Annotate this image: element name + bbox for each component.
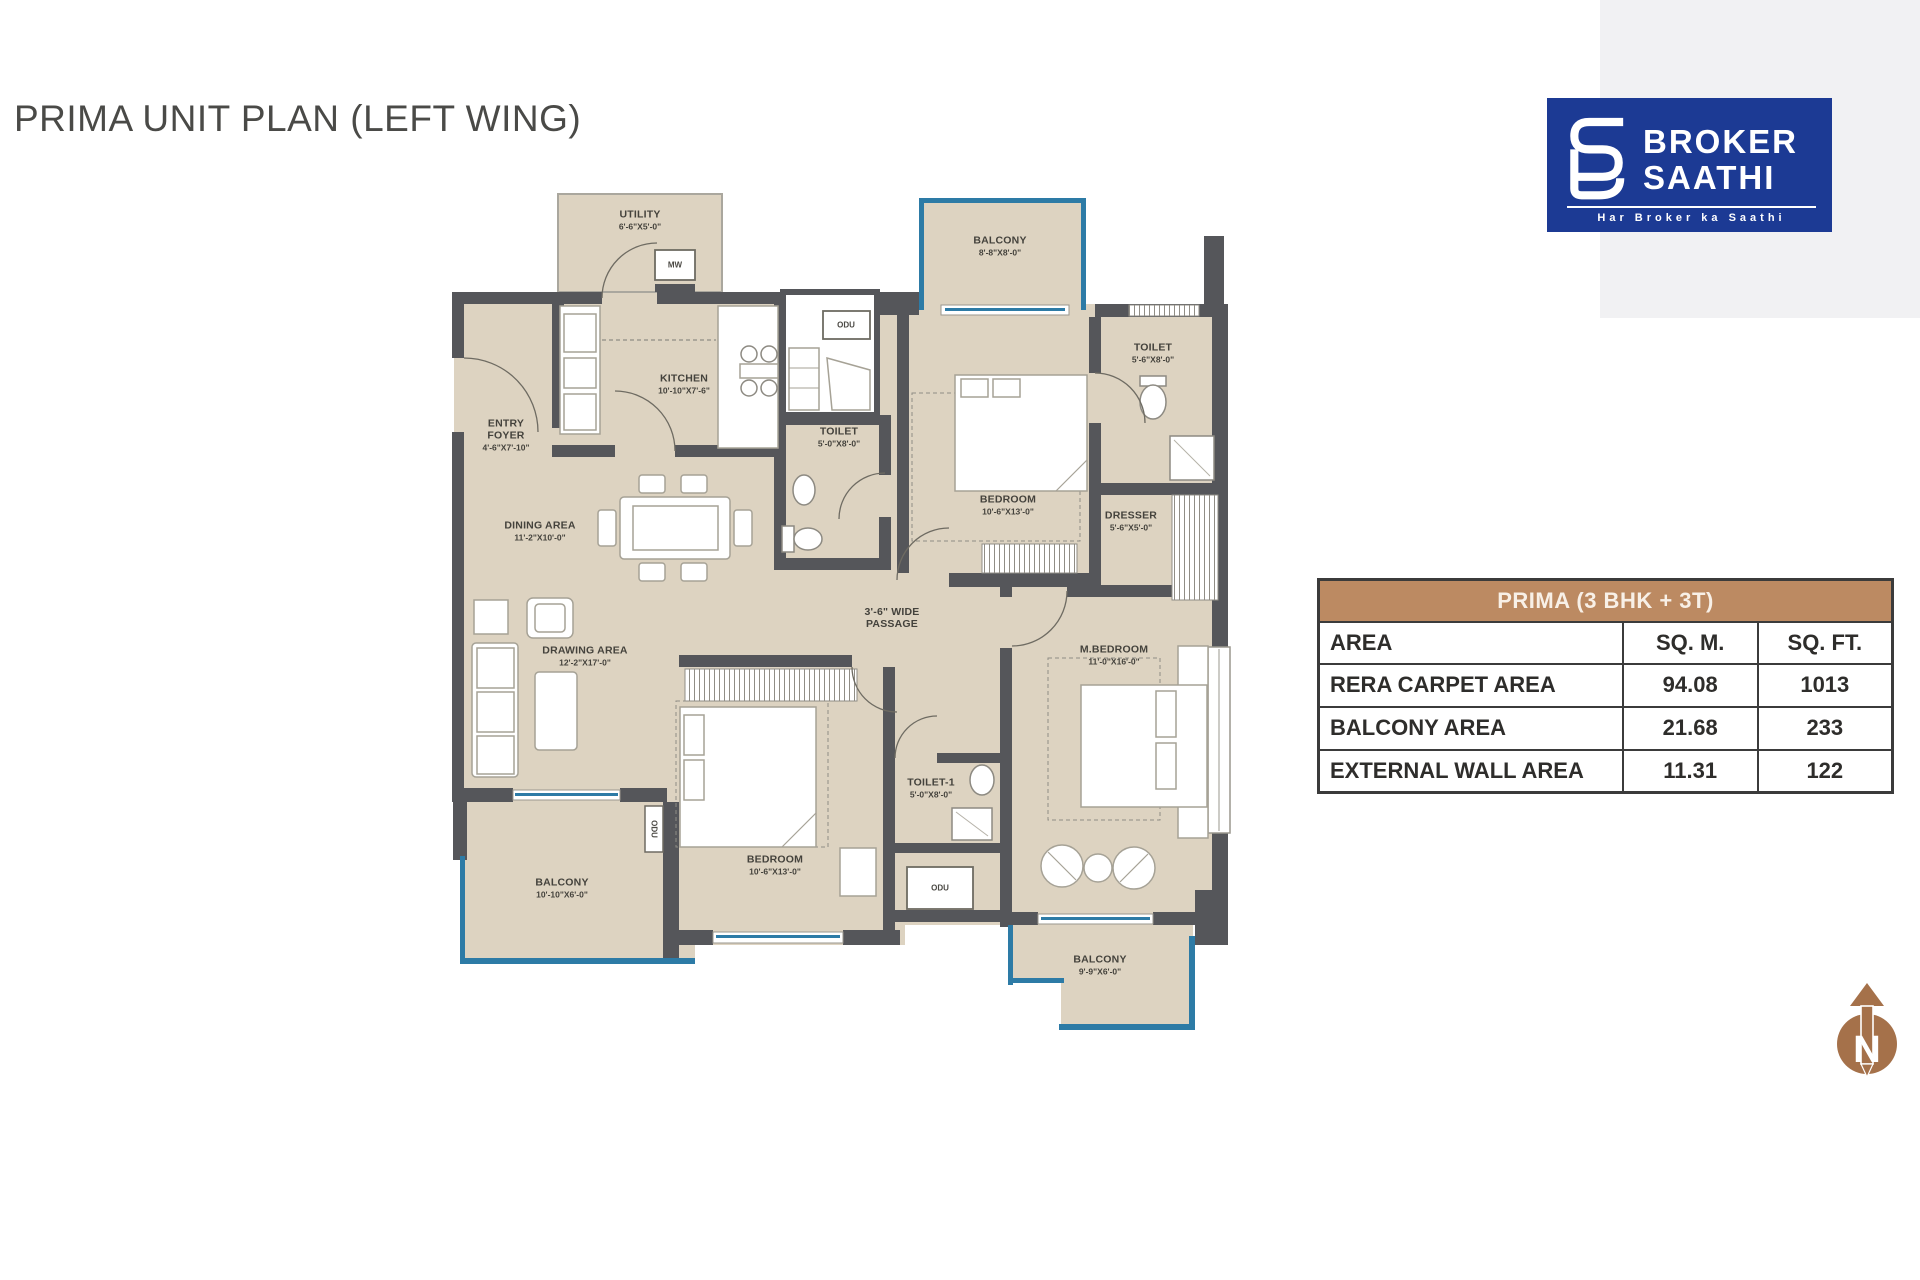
fixture-label: ODU — [837, 321, 855, 330]
floor-plan: UTILITY6'-6"X5'-0"KITCHEN10'-10"X7'-6"EN… — [452, 188, 1232, 1048]
col-header-sqm: SQ. M. — [1623, 622, 1758, 664]
page-title: PRIMA UNIT PLAN (LEFT WING) — [14, 98, 581, 140]
table-row: RERA CARPET AREA 94.08 1013 — [1319, 664, 1893, 707]
area-table: PRIMA (3 BHK + 3T) AREA SQ. M. SQ. FT. R… — [1317, 578, 1894, 794]
col-header-sqft: SQ. FT. — [1758, 622, 1893, 664]
logo-tagline: Har Broker ka Saathi — [1567, 206, 1816, 224]
north-compass: N — [1834, 982, 1900, 1082]
col-header-area: AREA — [1319, 622, 1623, 664]
row-sqft: 122 — [1758, 750, 1893, 793]
row-label: BALCONY AREA — [1319, 707, 1623, 750]
row-sqm: 21.68 — [1623, 707, 1758, 750]
logo-line2: SAATHI — [1643, 161, 1798, 194]
compass-n-label: N — [1853, 1029, 1880, 1071]
logo-text: BROKER SAATHI — [1643, 125, 1798, 194]
table-row: EXTERNAL WALL AREA 11.31 122 — [1319, 750, 1893, 793]
logo-line1: BROKER — [1643, 125, 1798, 158]
row-sqm: 94.08 — [1623, 664, 1758, 707]
row-sqft: 1013 — [1758, 664, 1893, 707]
fixture-label: ODU — [650, 820, 659, 838]
north-arrow-icon: N — [1834, 982, 1900, 1082]
area-table-title: PRIMA (3 BHK + 3T) — [1319, 580, 1893, 622]
fixture-label: MW — [668, 261, 682, 270]
row-label: RERA CARPET AREA — [1319, 664, 1623, 707]
table-row: BALCONY AREA 21.68 233 — [1319, 707, 1893, 750]
fixture-label: ODU — [931, 884, 949, 893]
floor-plan-drawing — [452, 188, 1232, 1048]
row-label: EXTERNAL WALL AREA — [1319, 750, 1623, 793]
row-sqm: 11.31 — [1623, 750, 1758, 793]
brand-logo: BROKER SAATHI Har Broker ka Saathi — [1547, 98, 1832, 232]
broker-saathi-monogram-icon — [1561, 113, 1635, 205]
row-sqft: 233 — [1758, 707, 1893, 750]
